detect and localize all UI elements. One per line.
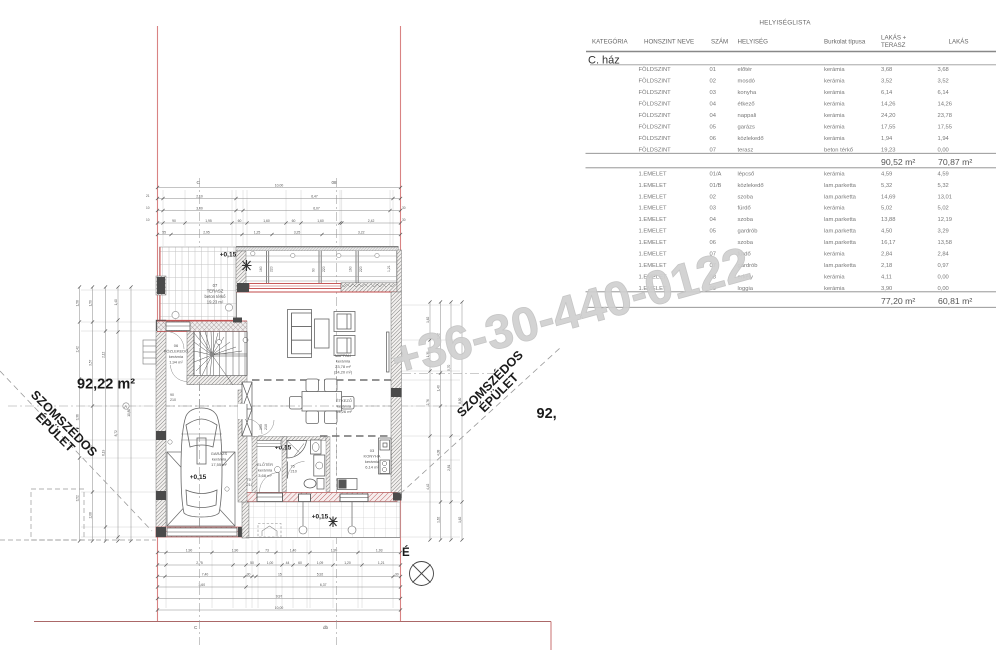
- svg-text:1.EMELET: 1.EMELET: [639, 194, 667, 200]
- svg-text:92,: 92,: [537, 406, 557, 422]
- svg-text:1,00: 1,00: [267, 561, 274, 565]
- svg-text:17,55: 17,55: [938, 124, 953, 130]
- svg-text:FÖLDSZINT: FÖLDSZINT: [639, 77, 672, 84]
- svg-text:01/B: 01/B: [710, 183, 722, 189]
- svg-text:3,00: 3,00: [196, 206, 203, 210]
- svg-text:kerámia: kerámia: [824, 113, 845, 119]
- svg-text:10,00: 10,00: [275, 606, 284, 610]
- svg-text:Burkolat típusa: Burkolat típusa: [824, 39, 866, 46]
- svg-text:90,52 m²: 90,52 m²: [881, 157, 915, 167]
- svg-text:kerámia: kerámia: [824, 124, 845, 130]
- svg-text:1,21: 1,21: [378, 561, 385, 565]
- svg-text:90: 90: [172, 219, 176, 223]
- svg-text:szoba: szoba: [738, 194, 754, 200]
- svg-text:1,50: 1,50: [88, 300, 92, 306]
- svg-text:ÉTKEZŐ: ÉTKEZŐ: [336, 398, 352, 403]
- svg-text:210: 210: [170, 398, 176, 402]
- svg-text:14,26: 14,26: [938, 101, 953, 107]
- svg-text:0,00: 0,00: [938, 274, 949, 280]
- svg-text:KATEGÓRIA: KATEGÓRIA: [592, 39, 629, 46]
- svg-text:17,55 m²: 17,55 m²: [211, 462, 227, 467]
- svg-text:terasz: terasz: [738, 147, 754, 153]
- svg-text:gardrób: gardrób: [738, 229, 758, 235]
- svg-text:FÖLDSZINT: FÖLDSZINT: [639, 100, 672, 107]
- svg-text:03: 03: [370, 448, 375, 453]
- svg-text:92,22 m²: 92,22 m²: [77, 377, 135, 393]
- svg-text:5,92: 5,92: [317, 572, 324, 576]
- svg-text:55: 55: [162, 230, 166, 234]
- svg-text:konyha: konyha: [738, 90, 757, 96]
- svg-text:6,14: 6,14: [881, 90, 893, 96]
- svg-text:1.EMELET: 1.EMELET: [639, 252, 667, 258]
- svg-text:db: db: [323, 625, 329, 630]
- svg-text:1,95: 1,95: [205, 219, 212, 223]
- svg-text:60,81 m²: 60,81 m²: [938, 296, 972, 306]
- svg-text:KÖZLEKEDŐ: KÖZLEKEDŐ: [164, 349, 188, 354]
- svg-text:1,60: 1,60: [317, 219, 324, 223]
- svg-text:beton térkő: beton térkő: [824, 147, 853, 153]
- svg-text:60: 60: [292, 219, 296, 223]
- svg-text:60: 60: [298, 561, 302, 565]
- svg-text:30: 30: [402, 206, 406, 210]
- svg-text:30: 30: [247, 572, 251, 576]
- svg-text:160: 160: [259, 266, 263, 272]
- svg-text:1,60: 1,60: [263, 219, 270, 223]
- svg-text:SZÁM: SZÁM: [711, 39, 728, 46]
- svg-text:3,57: 3,57: [88, 359, 92, 365]
- svg-text:4,59: 4,59: [881, 171, 892, 177]
- svg-text:FÖLDSZINT: FÖLDSZINT: [639, 66, 672, 73]
- svg-text:FÖLDSZINT: FÖLDSZINT: [639, 89, 672, 96]
- svg-text:1,40: 1,40: [114, 299, 118, 305]
- svg-text:A: A: [124, 404, 127, 409]
- svg-text:6,07: 6,07: [313, 206, 320, 210]
- svg-text:1,90: 1,90: [232, 548, 239, 552]
- svg-text:02: 02: [710, 78, 716, 84]
- svg-text:01: 01: [710, 67, 716, 73]
- svg-text:1,25: 1,25: [254, 230, 261, 234]
- svg-text:lépcső: lépcső: [738, 171, 755, 177]
- svg-text:3,52: 3,52: [75, 495, 79, 501]
- svg-text:210: 210: [264, 424, 268, 430]
- svg-text:10,00: 10,00: [275, 183, 284, 187]
- svg-text:1,40: 1,40: [436, 385, 440, 391]
- svg-text:1,94: 1,94: [881, 136, 893, 142]
- svg-text:2,42: 2,42: [75, 346, 79, 352]
- svg-text:3,52: 3,52: [881, 78, 892, 84]
- svg-text:6,37: 6,37: [320, 583, 327, 587]
- svg-text:44: 44: [286, 561, 290, 565]
- svg-text:kerámia: kerámia: [824, 171, 845, 177]
- svg-text:3,25: 3,25: [294, 230, 301, 234]
- svg-text:3,68: 3,68: [881, 67, 892, 73]
- svg-text:5,02: 5,02: [938, 206, 949, 212]
- svg-text:19,23 m²: 19,23 m²: [207, 300, 224, 305]
- svg-text:6,47: 6,47: [311, 194, 318, 198]
- svg-text:1,94: 1,94: [938, 136, 950, 142]
- svg-text:2,08: 2,08: [88, 512, 92, 518]
- svg-text:05: 05: [710, 229, 716, 235]
- svg-text:07: 07: [710, 147, 716, 153]
- svg-text:14,26: 14,26: [881, 101, 896, 107]
- svg-text:FÖLDSZINT: FÖLDSZINT: [639, 135, 672, 142]
- svg-text:kerámia: kerámia: [824, 136, 845, 142]
- svg-text:beton térkő: beton térkő: [205, 294, 227, 299]
- svg-text:1,93: 1,93: [376, 548, 383, 552]
- svg-text:1,90: 1,90: [186, 548, 193, 552]
- svg-text:NAPPALI: NAPPALI: [335, 353, 352, 358]
- svg-text:1,09: 1,09: [317, 561, 324, 565]
- svg-text:2,76: 2,76: [426, 399, 430, 405]
- svg-text:7,40: 7,40: [202, 572, 209, 576]
- svg-text:2,84: 2,84: [881, 252, 893, 258]
- svg-text:220: 220: [270, 266, 274, 272]
- svg-text:50: 50: [250, 561, 254, 565]
- svg-text:2,12: 2,12: [101, 351, 105, 357]
- svg-text:TERASZ: TERASZ: [881, 42, 906, 49]
- svg-text:(24,20 m²): (24,20 m²): [334, 370, 353, 375]
- svg-text:1.EMELET: 1.EMELET: [639, 229, 667, 235]
- svg-text:+0,15: +0,15: [312, 514, 329, 521]
- svg-text:90: 90: [312, 268, 316, 272]
- svg-text:3,68 m²: 3,68 m²: [258, 473, 272, 478]
- svg-text:+0,15: +0,15: [220, 252, 237, 259]
- svg-text:16,17: 16,17: [881, 240, 896, 246]
- svg-text:23,78: 23,78: [938, 113, 953, 119]
- svg-text:1.EMELET: 1.EMELET: [639, 206, 667, 212]
- svg-text:4,42: 4,42: [426, 483, 430, 489]
- svg-text:nappali: nappali: [738, 113, 757, 119]
- svg-text:2,18: 2,18: [881, 263, 892, 269]
- svg-text:kerámia: kerámia: [824, 252, 845, 258]
- svg-text:kerámia: kerámia: [824, 101, 845, 107]
- svg-text:2,81: 2,81: [447, 464, 451, 470]
- svg-text:kerámia: kerámia: [365, 459, 380, 464]
- svg-text:03: 03: [710, 206, 716, 212]
- svg-text:2,75: 2,75: [196, 561, 203, 565]
- svg-text:lam.parketta: lam.parketta: [824, 183, 857, 189]
- svg-text:05: 05: [710, 124, 716, 130]
- svg-text:17,55: 17,55: [881, 124, 896, 130]
- svg-text:3,60: 3,60: [198, 583, 205, 587]
- svg-text:1,40: 1,40: [290, 548, 297, 552]
- svg-text:5,32: 5,32: [881, 183, 892, 189]
- svg-text:06: 06: [174, 343, 179, 348]
- svg-text:220: 220: [322, 266, 326, 272]
- svg-text:FÖLDSZINT: FÖLDSZINT: [639, 123, 672, 130]
- svg-text:08: 08: [332, 180, 338, 185]
- svg-text:lam.parketta: lam.parketta: [824, 240, 857, 246]
- svg-text:21: 21: [146, 194, 150, 198]
- svg-text:GARÁZS: GARÁZS: [211, 451, 228, 456]
- svg-text:77,20 m²: 77,20 m²: [881, 296, 915, 306]
- svg-text:lam.parketta: lam.parketta: [824, 194, 857, 200]
- svg-text:06: 06: [710, 136, 716, 142]
- svg-text:étkező: étkező: [738, 101, 755, 107]
- svg-text:0,97: 0,97: [938, 263, 949, 269]
- svg-text:4,08: 4,08: [436, 449, 440, 455]
- svg-text:kerámia: kerámia: [824, 206, 845, 212]
- svg-text:kerámia: kerámia: [824, 67, 845, 73]
- svg-text:13,01: 13,01: [938, 194, 953, 200]
- svg-text:FÖLDSZINT: FÖLDSZINT: [639, 146, 672, 153]
- svg-text:LAKÁS: LAKÁS: [949, 39, 969, 46]
- svg-text:lam.parketta: lam.parketta: [824, 263, 857, 269]
- svg-text:1,21: 1,21: [387, 265, 391, 272]
- svg-text:előtér: előtér: [738, 67, 753, 73]
- svg-text:KONYHA: KONYHA: [364, 454, 381, 459]
- svg-text:3,52: 3,52: [938, 78, 949, 84]
- svg-text:kerámia: kerámia: [258, 468, 273, 473]
- svg-text:10: 10: [146, 218, 150, 222]
- svg-text:kerámia: kerámia: [824, 90, 845, 96]
- svg-text:FÖLDSZINT: FÖLDSZINT: [639, 112, 672, 119]
- svg-text:6,14 m²: 6,14 m²: [365, 465, 379, 470]
- svg-text:75: 75: [291, 465, 295, 469]
- svg-text:kerámia: kerámia: [212, 457, 227, 462]
- svg-text:lam.parketta: lam.parketta: [824, 217, 857, 223]
- svg-text:75: 75: [247, 478, 251, 482]
- svg-text:lam.parketta: lam.parketta: [824, 229, 857, 235]
- svg-text:garázs: garázs: [738, 124, 756, 130]
- svg-text:kerámia: kerámia: [824, 286, 845, 292]
- svg-text:6,14: 6,14: [938, 90, 950, 96]
- svg-text:2,10: 2,10: [196, 194, 203, 198]
- svg-text:220: 220: [359, 266, 363, 272]
- svg-text:60: 60: [238, 219, 242, 223]
- svg-text:160: 160: [349, 266, 353, 272]
- svg-text:100: 100: [259, 424, 263, 430]
- svg-text:3,36: 3,36: [75, 414, 79, 420]
- svg-text:mosdó: mosdó: [738, 78, 755, 84]
- svg-text:19,23: 19,23: [881, 147, 896, 153]
- svg-text:közlekedő: közlekedő: [738, 183, 764, 189]
- svg-text:0,00: 0,00: [938, 147, 949, 153]
- svg-text:70,87 m²: 70,87 m²: [938, 157, 972, 167]
- svg-text:1,62: 1,62: [458, 516, 462, 522]
- svg-text:2,95: 2,95: [203, 230, 210, 234]
- svg-text:5,02: 5,02: [881, 206, 892, 212]
- svg-text:ELŐTÉR: ELŐTÉR: [257, 462, 273, 467]
- svg-text:3,22: 3,22: [358, 230, 365, 234]
- svg-text:szoba: szoba: [738, 217, 754, 223]
- svg-text:1,58: 1,58: [75, 300, 79, 306]
- svg-text:04: 04: [710, 217, 717, 223]
- svg-text:30: 30: [402, 218, 406, 222]
- svg-text:3,29: 3,29: [938, 229, 949, 235]
- svg-text:kerámia: kerámia: [824, 274, 845, 280]
- svg-text:04: 04: [710, 101, 717, 107]
- svg-text:13,58: 13,58: [938, 240, 953, 246]
- svg-text:210: 210: [291, 470, 297, 474]
- svg-text:TERASZ: TERASZ: [207, 289, 224, 294]
- svg-text:HONSZINT NEVE: HONSZINT NEVE: [644, 39, 694, 46]
- svg-text:LAKÁS +: LAKÁS +: [881, 35, 907, 42]
- svg-text:1,62: 1,62: [436, 516, 440, 522]
- svg-text:01/A: 01/A: [710, 171, 722, 177]
- svg-text:9,97: 9,97: [276, 594, 283, 598]
- svg-text:2,42: 2,42: [368, 219, 375, 223]
- svg-text:90: 90: [170, 393, 174, 397]
- svg-text:07: 07: [213, 283, 218, 288]
- svg-text:kerámia: kerámia: [336, 359, 351, 364]
- svg-text:6,19: 6,19: [101, 449, 105, 455]
- svg-text:3,68: 3,68: [938, 67, 949, 73]
- svg-text:10,80: 10,80: [127, 409, 131, 417]
- svg-text:É: É: [402, 546, 410, 559]
- svg-text:1.EMELET: 1.EMELET: [639, 183, 667, 189]
- svg-text:1,99: 1,99: [331, 548, 338, 552]
- svg-text:1,62: 1,62: [426, 316, 430, 322]
- svg-text:1.EMELET: 1.EMELET: [639, 217, 667, 223]
- svg-text:12,19: 12,19: [938, 217, 953, 223]
- svg-text:04: 04: [710, 113, 717, 119]
- svg-text:73: 73: [265, 548, 269, 552]
- svg-text:+0,15: +0,15: [190, 474, 207, 481]
- svg-text:közlekedő: közlekedő: [738, 136, 764, 142]
- svg-text:1,20: 1,20: [344, 561, 351, 565]
- svg-text:13,88: 13,88: [881, 217, 896, 223]
- svg-text:1,94 m²: 1,94 m²: [169, 360, 183, 365]
- svg-text:14,69: 14,69: [881, 194, 896, 200]
- svg-text:5,32: 5,32: [938, 183, 949, 189]
- svg-text:4,59: 4,59: [938, 171, 949, 177]
- svg-text:1.EMELET: 1.EMELET: [639, 171, 667, 177]
- svg-text:fürdő: fürdő: [738, 206, 751, 212]
- svg-text:3,90: 3,90: [881, 286, 892, 292]
- svg-text:10: 10: [146, 206, 150, 210]
- svg-text:1.EMELET: 1.EMELET: [639, 240, 667, 246]
- svg-text:15: 15: [278, 572, 282, 576]
- svg-text:0,00: 0,00: [938, 286, 949, 292]
- svg-text:HELYISÉGLISTA: HELYISÉGLISTA: [759, 18, 811, 27]
- svg-text:30: 30: [395, 572, 399, 576]
- svg-text:24,20: 24,20: [881, 113, 896, 119]
- svg-text:23,78 m²: 23,78 m²: [335, 364, 351, 369]
- svg-text:8,72: 8,72: [114, 430, 118, 436]
- svg-text:kerámia: kerámia: [169, 354, 184, 359]
- svg-text:HELYISÉG: HELYISÉG: [738, 39, 769, 46]
- svg-text:02: 02: [710, 194, 716, 200]
- svg-text:03: 03: [710, 90, 716, 96]
- svg-text:2,84: 2,84: [938, 252, 950, 258]
- svg-text:kerámia: kerámia: [824, 78, 845, 84]
- svg-text:14,26 m²: 14,26 m²: [336, 409, 352, 414]
- svg-text:4,50: 4,50: [881, 229, 892, 235]
- svg-text:4,11: 4,11: [881, 274, 892, 280]
